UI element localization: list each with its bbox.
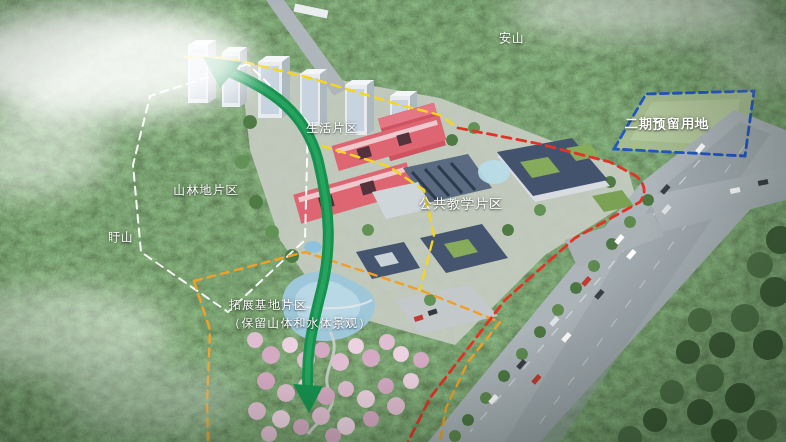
vignette-overlay — [0, 0, 786, 442]
campus-master-plan-rendering: 安山 盱山 山林地片区 生活片区 公共教学片区 二期预留用地 拓展基地片区 （保… — [0, 0, 786, 442]
aerial-rendering-canvas — [0, 0, 786, 442]
